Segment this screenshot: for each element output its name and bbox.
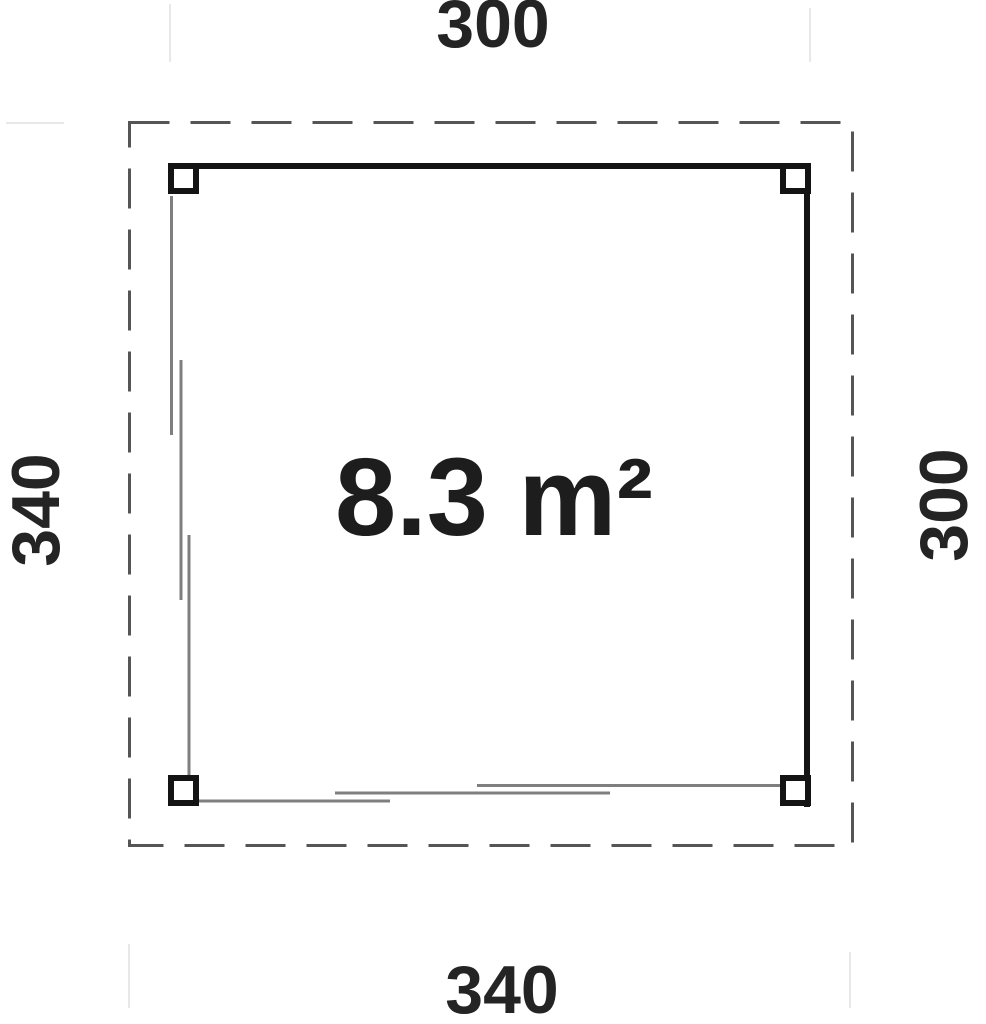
dimension-top: 300 [393,0,593,64]
corner-post-top-right [783,166,808,191]
area-label: 8.3 m² [194,408,794,588]
dimension-left: 340 [0,410,76,610]
dimension-bottom: 340 [402,950,602,1024]
floor-plan-canvas: 300 340 340 300 8.3 m² [0,0,986,1024]
dimension-right: 300 [904,405,984,605]
corner-post-bottom-right [783,778,808,803]
corner-post-top-left [171,166,196,191]
corner-post-bottom-left [171,778,196,803]
